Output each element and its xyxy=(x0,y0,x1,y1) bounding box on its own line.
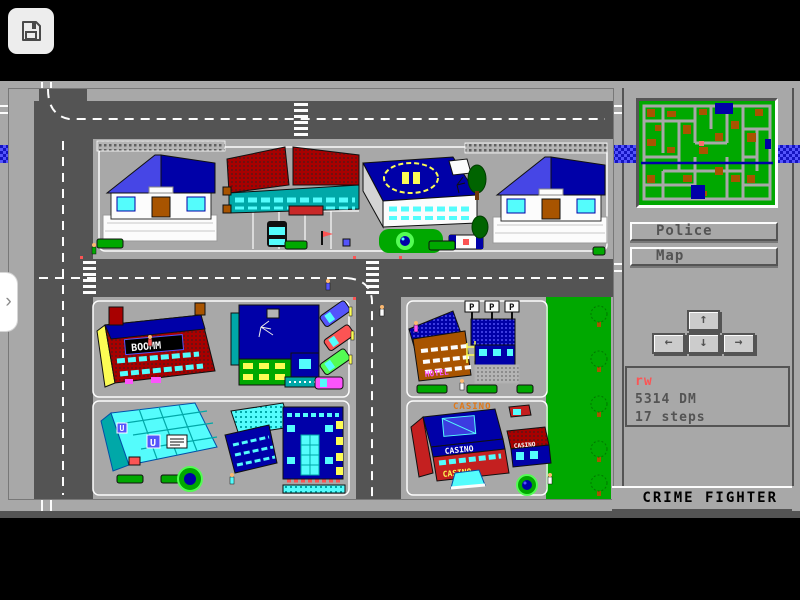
money-value: 5314 DM xyxy=(635,391,788,409)
fence xyxy=(97,141,225,151)
minimap-canvas xyxy=(639,101,775,205)
dpad-right-button[interactable]: → xyxy=(722,333,755,354)
dpad-left-button[interactable]: ← xyxy=(652,333,685,354)
minimap-player-marker xyxy=(699,141,704,146)
parking-sign: P xyxy=(469,303,475,313)
sidebar-expand-tab[interactable]: › xyxy=(0,272,18,332)
subway-sign: U xyxy=(150,438,156,449)
chevron-right-icon: › xyxy=(5,291,11,313)
radio-building xyxy=(231,305,319,387)
hospital-building xyxy=(363,157,483,253)
player-name: rw xyxy=(635,373,788,391)
game-viewport: BOOMM xyxy=(0,81,800,518)
bezel-marker xyxy=(613,105,622,107)
bottom-shadow xyxy=(0,511,800,518)
bezel-marker xyxy=(613,263,622,265)
parking-sign: P xyxy=(489,303,495,313)
police-button[interactable]: Police xyxy=(630,222,778,241)
minimap xyxy=(636,98,778,208)
fence xyxy=(465,143,607,153)
status-panel: rw 5314 DM 17 steps xyxy=(625,366,790,427)
game-title: CRIME FIGHTER xyxy=(612,486,792,512)
steps-value: 17 steps xyxy=(635,409,788,427)
bezel-marker xyxy=(613,112,622,114)
city-map[interactable]: BOOMM xyxy=(8,88,614,500)
dpad-up-button[interactable]: ↑ xyxy=(687,310,720,331)
save-button[interactable] xyxy=(8,8,54,54)
map-button[interactable]: Map xyxy=(630,247,778,266)
parking-sign: P xyxy=(509,303,515,313)
screen: BOOMM xyxy=(0,0,800,600)
dpad-down-button[interactable]: ↓ xyxy=(687,333,720,354)
fountain-water xyxy=(184,473,196,485)
bezel-marker xyxy=(613,270,622,272)
subway-sign: U xyxy=(120,424,125,433)
city-map-canvas: BOOMM xyxy=(9,89,613,499)
floppy-save-icon xyxy=(19,19,43,43)
